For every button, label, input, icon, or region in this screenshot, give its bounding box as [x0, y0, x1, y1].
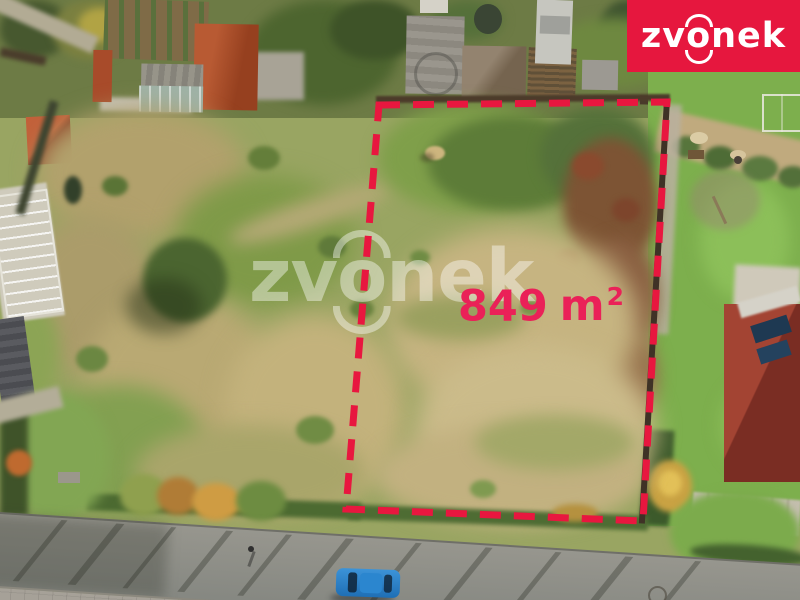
autumn-tree: [192, 483, 240, 521]
aerial-photo: zvonek 849m2 zvonek: [0, 0, 800, 600]
area-exponent: 2: [607, 282, 624, 311]
terrain-patch: [248, 146, 280, 170]
terrain-patch: [6, 450, 32, 476]
blue-car: [336, 568, 401, 598]
vegetable-garden: [103, 0, 209, 62]
hip-roof-shed: [462, 45, 527, 98]
terrain-patch: [474, 4, 502, 34]
terrain-patch: [420, 153, 434, 162]
terrain-patch: [64, 176, 82, 204]
watermark-text-left: zv: [249, 234, 337, 319]
logo-text-right: nek: [711, 16, 786, 56]
terrain-patch: [58, 472, 80, 483]
logo-o-mark: o: [686, 19, 711, 54]
area-value: 849: [458, 281, 548, 331]
terrain-patch: [540, 15, 571, 34]
terrain-patch: [102, 176, 128, 196]
terrain-patch: [690, 132, 708, 144]
watermark-o-mark: o: [337, 240, 386, 313]
logo-text-left: zv: [641, 16, 686, 56]
garden-trellis: [762, 94, 800, 132]
zvonek-logo-text: zvonek: [641, 19, 786, 54]
terrain-patch: [572, 152, 604, 180]
terrain-patch: [734, 156, 742, 164]
manhole-cover: [648, 586, 667, 600]
terrain-patch: [658, 470, 682, 496]
terrain-patch: [420, 0, 448, 13]
arc-bottom-icon: [685, 50, 713, 63]
terrain-patch: [360, 573, 383, 594]
terrain-patch: [76, 346, 108, 372]
terrain-patch: [252, 52, 304, 100]
terrain-patch: [688, 150, 704, 159]
terrain-patch: [0, 511, 169, 598]
terrain-patch: [582, 60, 619, 91]
terrain-patch: [348, 572, 358, 592]
red-roof-wing: [93, 50, 113, 102]
terrain-patch: [126, 278, 202, 334]
terrain-patch: [236, 481, 286, 521]
terrain-patch: [414, 52, 458, 96]
terrain-patch: [475, 415, 635, 470]
zvonek-logo: zvonek: [627, 0, 800, 72]
terrain-patch: [612, 198, 640, 222]
terrain-patch: [778, 166, 800, 188]
terrain-patch: [552, 504, 598, 522]
area-label: 849m2: [458, 284, 624, 328]
area-unit: m: [560, 281, 605, 331]
terrain-patch: [296, 416, 334, 444]
terrain-patch: [384, 575, 393, 593]
terrain-patch: [470, 480, 496, 498]
